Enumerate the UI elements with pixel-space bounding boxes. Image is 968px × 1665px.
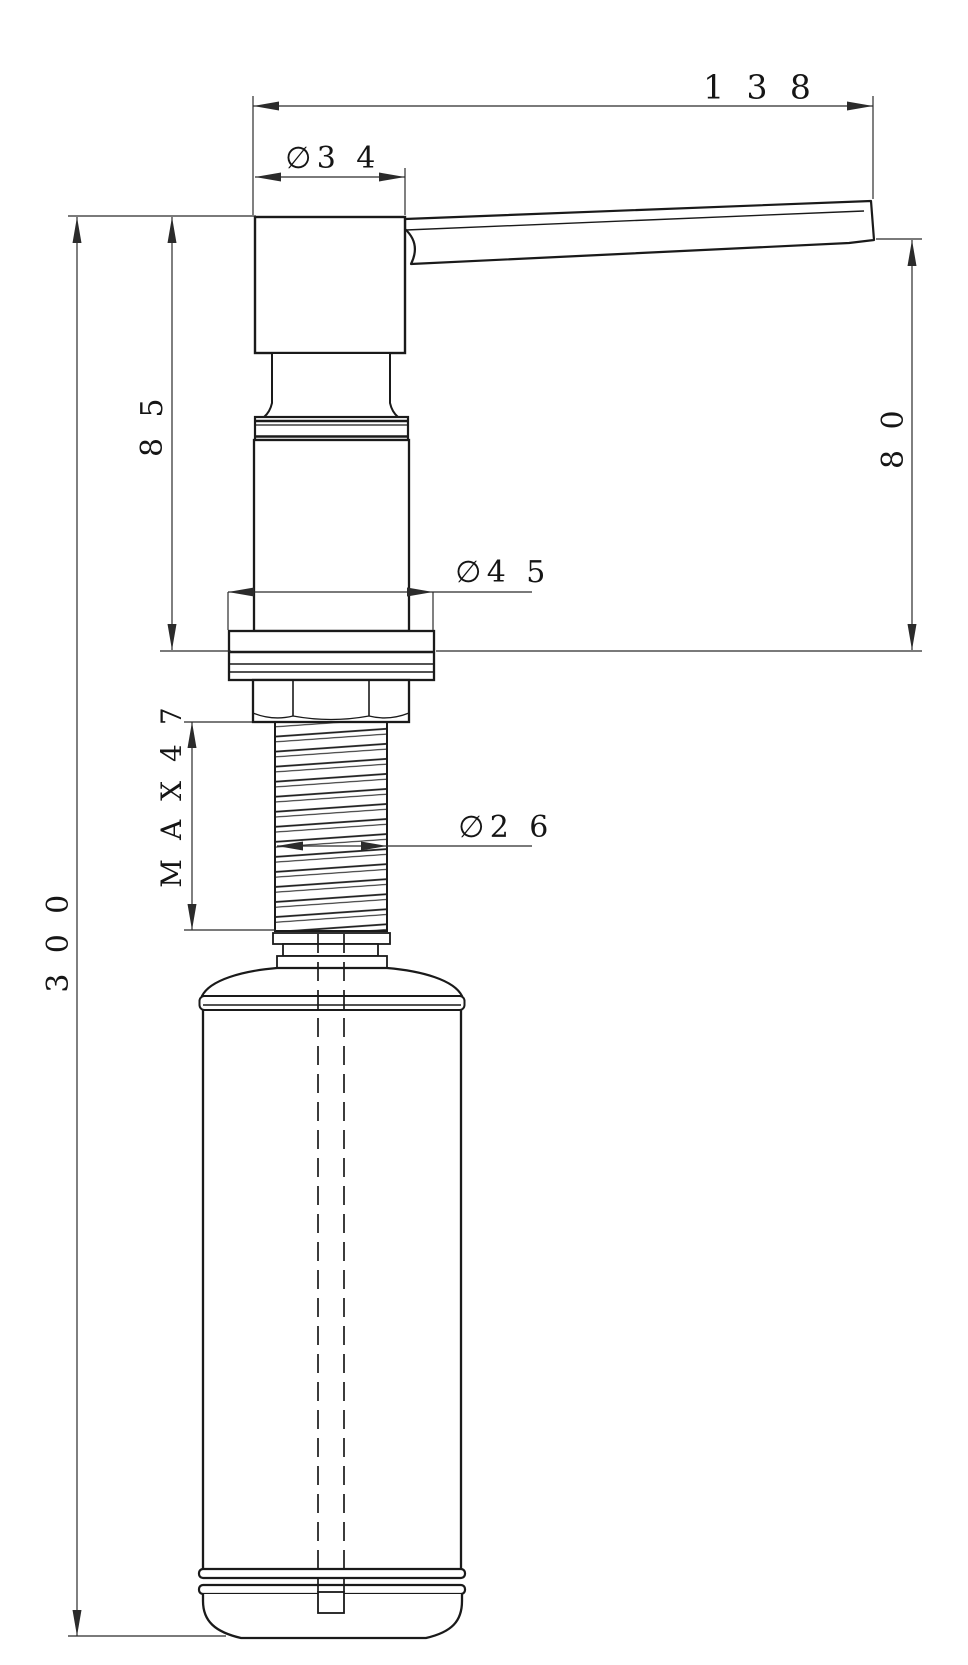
bottle-top-ring	[200, 996, 465, 1010]
bottle-neck-steps	[273, 933, 390, 968]
escutcheon-flange	[229, 631, 434, 680]
hex-nut	[253, 680, 409, 722]
label-thread-length: M A X 4 7	[158, 702, 186, 887]
label-flange-diameter: ∅4 5	[455, 558, 550, 588]
label-spout-height: 8 0	[879, 405, 909, 469]
bottle-bottom-rings	[199, 1569, 465, 1594]
dip-tube	[318, 934, 344, 1613]
pump-head	[255, 217, 405, 353]
dimension-thread-length	[184, 722, 276, 930]
label-overall-length: 1 3 8	[703, 71, 817, 104]
pump-body-tube	[254, 440, 409, 631]
label-overall-height: 3 0 0	[44, 889, 74, 992]
label-head-diameter: ∅3 4	[285, 144, 380, 174]
threaded-shank	[275, 722, 387, 931]
spout	[405, 201, 874, 264]
collar-ring	[255, 417, 408, 440]
label-pump-upper-height: 8 5	[138, 393, 168, 457]
label-thread-diameter: ∅2 6	[458, 813, 553, 843]
bottle-body	[203, 1010, 461, 1570]
pump-neck	[264, 353, 398, 417]
bottle-shoulder	[202, 968, 462, 998]
drawing-canvas: 1 3 8 ∅3 4 8 5 8 0 ∅4 5 M A X 4 7 ∅2 6 3…	[0, 0, 968, 1665]
